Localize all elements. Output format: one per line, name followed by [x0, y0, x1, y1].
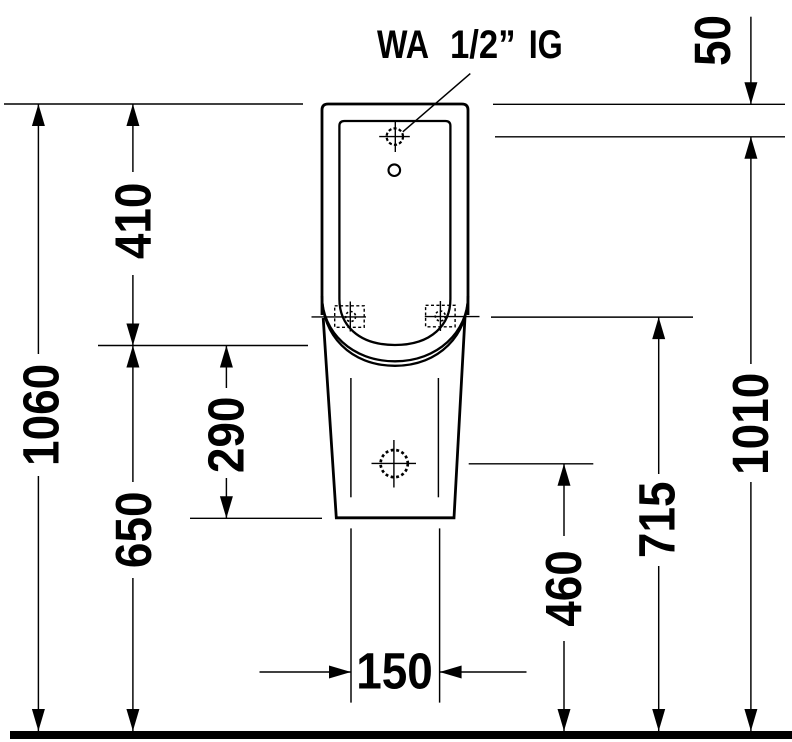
svg-text:IG: IG [529, 22, 563, 67]
svg-text:50: 50 [685, 15, 742, 66]
svg-text:715: 715 [629, 482, 686, 559]
svg-text:650: 650 [106, 492, 163, 569]
svg-text:1060: 1060 [13, 364, 70, 466]
svg-text:1010: 1010 [723, 373, 780, 475]
svg-text:WA: WA [377, 22, 429, 67]
svg-text:290: 290 [198, 397, 255, 474]
svg-text:150: 150 [356, 643, 433, 700]
svg-text:410: 410 [105, 183, 162, 260]
svg-text:1/2”: 1/2” [450, 22, 516, 67]
svg-text:460: 460 [536, 550, 593, 627]
